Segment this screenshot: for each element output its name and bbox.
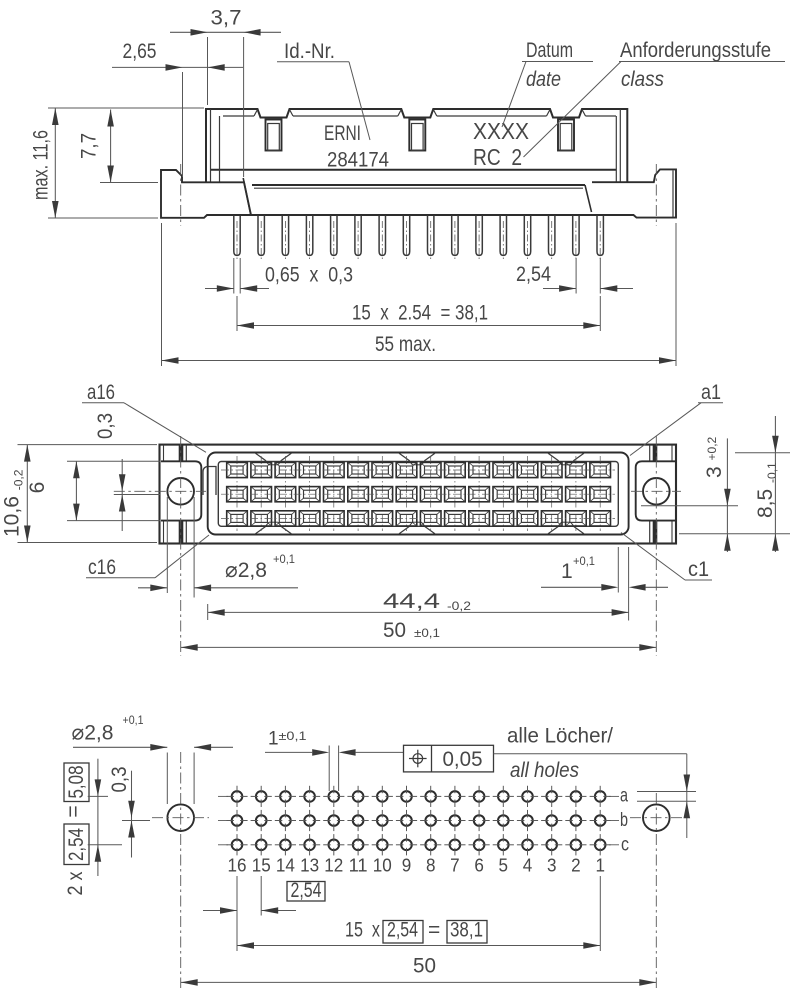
svg-text:XXXX: XXXX: [473, 118, 529, 144]
svg-text:+0,1: +0,1: [573, 554, 595, 568]
svg-text:3: 3: [547, 855, 557, 876]
svg-text:2 x: 2 x: [64, 871, 87, 895]
svg-text:0,3: 0,3: [108, 767, 131, 793]
svg-text:50: 50: [383, 619, 406, 642]
svg-text:10: 10: [373, 855, 392, 876]
svg-text:all holes: all holes: [510, 759, 579, 782]
svg-text:c1: c1: [688, 558, 709, 581]
svg-text:a16: a16: [87, 381, 115, 404]
svg-text:1: 1: [561, 560, 573, 583]
svg-text:±0,1: ±0,1: [279, 729, 307, 743]
svg-text:0,65 x 0,3: 0,65 x 0,3: [265, 264, 353, 287]
svg-text:6: 6: [474, 855, 484, 876]
svg-text:⌀2,8: ⌀2,8: [72, 721, 114, 745]
svg-text:Id.-Nr.: Id.-Nr.: [284, 40, 335, 63]
svg-text:Datum: Datum: [526, 39, 573, 62]
svg-text:ERNI: ERNI: [324, 122, 361, 145]
svg-text:0,05: 0,05: [443, 748, 483, 771]
svg-text:+0,1: +0,1: [123, 713, 144, 727]
svg-text:50: 50: [413, 955, 436, 978]
svg-text:2,54: 2,54: [387, 919, 418, 942]
svg-text:b: b: [620, 810, 628, 831]
svg-text:2,54: 2,54: [516, 263, 551, 286]
svg-text:15 x: 15 x: [345, 919, 380, 942]
svg-text:2,65: 2,65: [123, 40, 157, 63]
svg-text:+0,1: +0,1: [273, 552, 295, 566]
svg-text:14: 14: [276, 855, 295, 876]
svg-text:2: 2: [571, 855, 581, 876]
svg-text:6: 6: [26, 482, 49, 494]
svg-text:=: =: [62, 805, 85, 817]
svg-text:c16: c16: [88, 556, 116, 579]
svg-text:2,54: 2,54: [65, 828, 88, 861]
svg-text:±0,1: ±0,1: [414, 626, 440, 640]
svg-text:38,1: 38,1: [450, 919, 483, 942]
svg-text:13: 13: [300, 855, 319, 876]
svg-text:11: 11: [349, 855, 368, 876]
svg-text:max. 11,6: max. 11,6: [30, 130, 53, 200]
svg-text:class: class: [621, 68, 664, 91]
svg-text:⌀2,8: ⌀2,8: [225, 558, 267, 582]
svg-text:Anforderungsstufe: Anforderungsstufe: [620, 39, 771, 62]
svg-text:15 x 2.54 = 38,1: 15 x 2.54 = 38,1: [352, 302, 488, 325]
svg-text:-0,2: -0,2: [447, 599, 471, 613]
svg-text:=: =: [428, 919, 440, 942]
svg-text:55 max.: 55 max.: [375, 333, 436, 356]
svg-text:12: 12: [324, 855, 343, 876]
svg-text:RC 2: RC 2: [473, 144, 522, 170]
svg-text:9: 9: [402, 855, 412, 876]
svg-text:8: 8: [426, 855, 436, 876]
svg-text:c: c: [621, 835, 629, 856]
svg-text:3,7: 3,7: [211, 7, 242, 30]
svg-text:284174: 284174: [327, 148, 389, 172]
svg-text:7: 7: [450, 855, 460, 876]
svg-text:date: date: [526, 68, 561, 91]
svg-text:a: a: [620, 786, 628, 807]
svg-text:44,4: 44,4: [383, 590, 440, 613]
svg-text:16: 16: [228, 855, 247, 876]
svg-text:alle Löcher/: alle Löcher/: [507, 725, 613, 748]
svg-text:15: 15: [252, 855, 271, 876]
svg-text:0,3: 0,3: [94, 413, 117, 439]
svg-text:5,08: 5,08: [65, 766, 88, 799]
svg-text:1: 1: [595, 855, 605, 876]
svg-text:4: 4: [523, 855, 533, 876]
svg-text:7,7: 7,7: [78, 133, 101, 159]
svg-text:2,54: 2,54: [291, 879, 322, 902]
svg-text:a1: a1: [701, 381, 721, 404]
svg-text:5: 5: [499, 855, 509, 876]
svg-text:1: 1: [268, 729, 279, 750]
